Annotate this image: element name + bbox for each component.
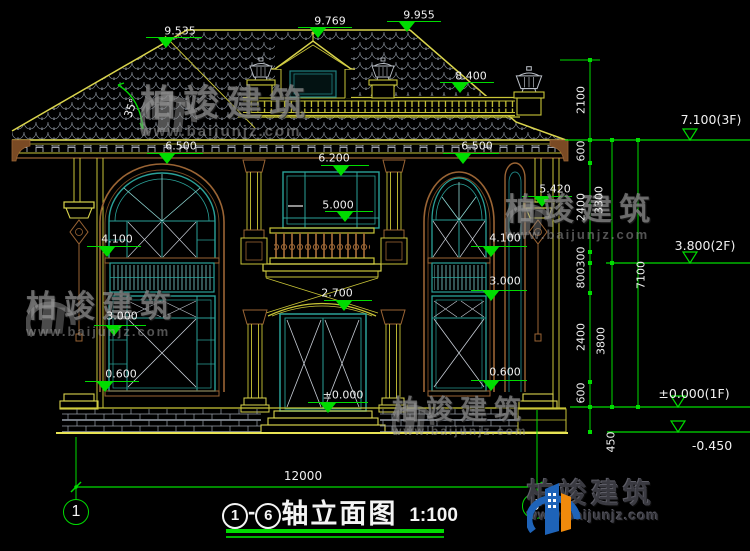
title-axis-to: 6 [255,503,281,529]
left-wing-window [100,164,224,396]
entry-door [280,314,366,411]
pilaster-left [60,158,98,409]
elevation-drawing [0,0,750,551]
apron-braces [266,278,378,313]
elevation-markers [565,129,750,432]
brick-base-right [380,409,518,432]
title-underline-thin [226,536,444,538]
brand-logo-icon [527,479,583,541]
axis-number: 1 [72,503,81,520]
columns-1f [241,310,407,412]
title-text: 轴立面图 [281,499,397,529]
urn-corner [516,67,541,92]
column-2f-right [381,160,407,264]
dormer-window [290,71,336,97]
brick-base-left [62,409,261,432]
brand-logo: 柏竣建筑 www.baijunjz.com [527,479,660,523]
axis-bubble-1: 1 [63,499,89,525]
main-eave [12,140,568,161]
title-underline [226,529,444,533]
entry-steps [261,411,385,433]
column-2f-left [241,160,267,264]
balcony [263,228,381,316]
narrow-arch-window [505,163,525,392]
title-axis-from: 1 [222,503,248,529]
title-scale: 1:100 [409,505,458,526]
terrace-balustrade [238,96,520,117]
dormer [271,32,355,99]
center-2f-window [283,172,379,228]
column-1f-left [241,310,269,412]
dimension-chains [560,58,640,434]
right-wing-window [424,163,525,396]
column-1f-right [379,310,407,412]
title-dash: - [248,499,255,524]
cad-elevation-screenshot: { "title": { "axis_from": "1", "dash": "… [0,0,750,551]
drawing-title: 1-6轴立面图1:100 [222,492,458,531]
